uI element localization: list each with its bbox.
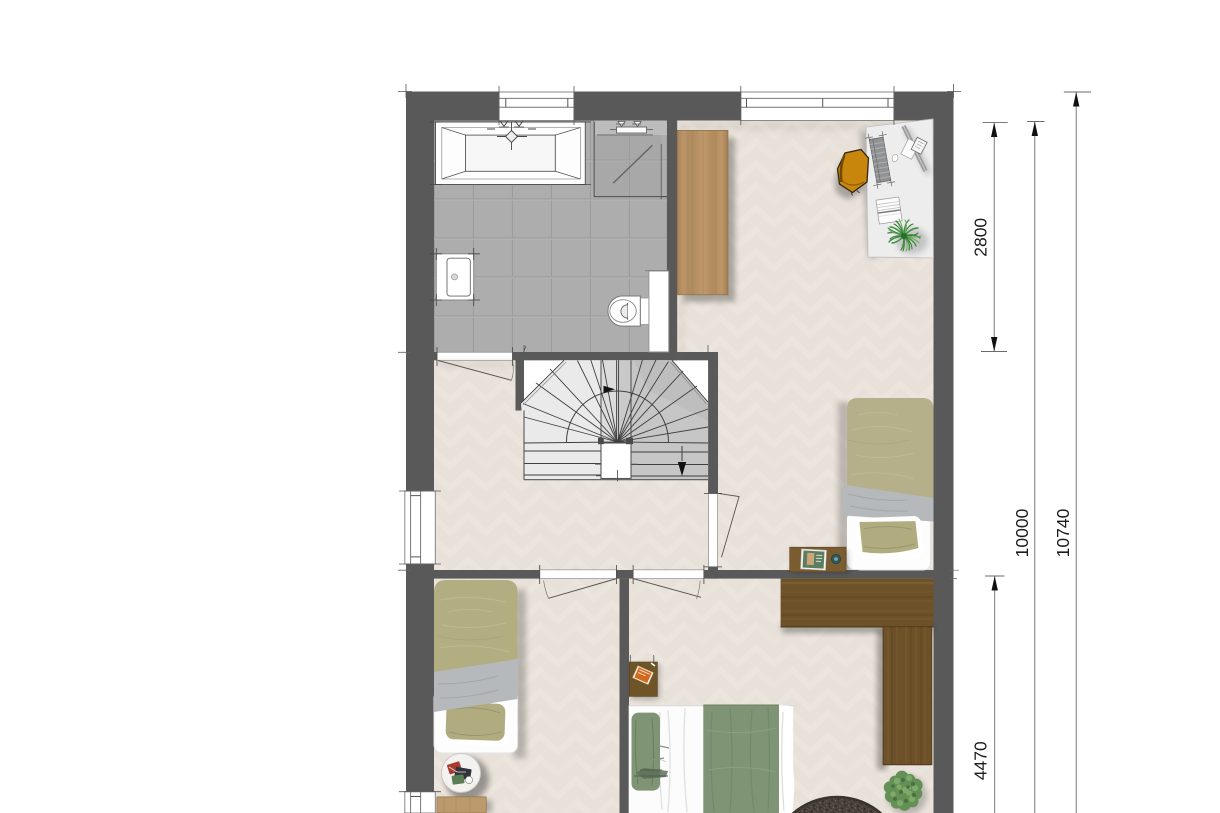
svg-text:10000: 10000: [1012, 508, 1032, 557]
svg-text:2800: 2800: [971, 218, 991, 257]
svg-text:4470: 4470: [970, 741, 990, 780]
svg-text:10740: 10740: [1053, 508, 1073, 557]
